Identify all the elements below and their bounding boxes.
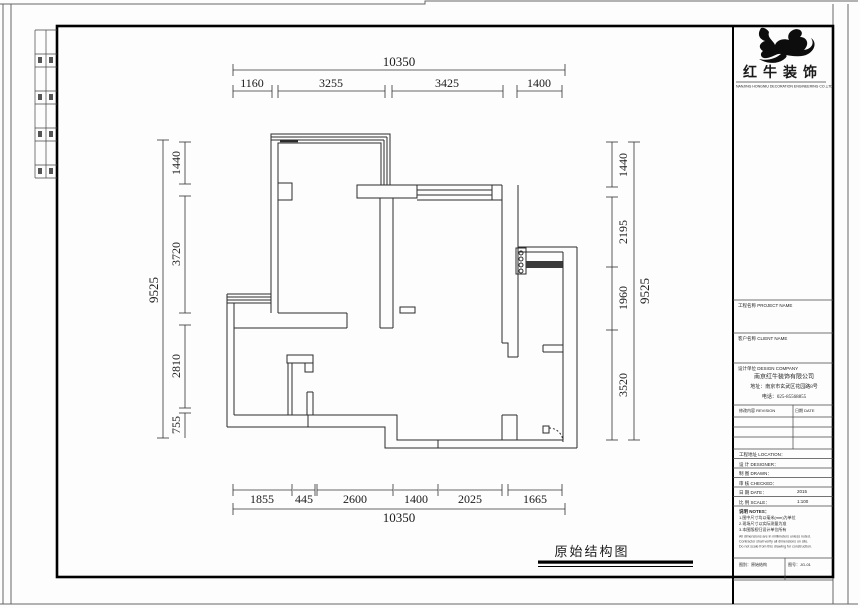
footer-drawing-type: 图别：原始结构 — [739, 562, 767, 568]
dim-left-seg-0: 1440 — [169, 151, 183, 175]
strip-marks — [38, 57, 53, 174]
dimension-top — [233, 64, 565, 98]
dim-bottom-seg-5: 1665 — [523, 492, 547, 506]
dim-bottom-overall: 10350 — [383, 510, 416, 525]
dim-right-seg-1: 2195 — [616, 220, 630, 244]
revision-col-header: 修改内容 REVISION — [739, 408, 775, 414]
dim-right-overall: 9525 — [637, 278, 652, 304]
dim-bottom-seg-2: 2600 — [343, 492, 367, 506]
field-checked: 审 核 CHECKED： — [739, 480, 777, 487]
field-location: 工程地址 LOCATION： — [739, 451, 785, 458]
field-date-value: 2015 — [797, 489, 807, 494]
dim-bottom-seg-3: 1400 — [404, 492, 428, 506]
dim-bottom-seg-1: 445 — [295, 492, 313, 506]
floor-plan-walls — [227, 134, 577, 448]
note-line-1: 1.图中尺寸均以毫米(mm)为单位 — [739, 515, 796, 521]
floorplan-canvas: 10350 1160 3255 3425 1400 1855 445 2600 … — [0, 0, 860, 608]
note-small-3: Do not scale from this drawing for const… — [739, 545, 812, 549]
dim-left-seg-3: 755 — [169, 416, 183, 434]
drawing-sheet: 10350 1160 3255 3425 1400 1855 445 2600 … — [0, 0, 860, 608]
section-label-project: 工程名称 PROJECT NAME — [738, 302, 792, 309]
dim-left-seg-2: 2810 — [169, 354, 183, 378]
dim-top-seg-1: 3255 — [319, 76, 343, 90]
dim-right-seg-2: 1960 — [616, 286, 630, 310]
section-label-client: 客户名称 CLIENT NAME — [738, 335, 787, 342]
section-label-design-co: 设计单位 DESIGN COMPANY — [738, 365, 798, 372]
dim-left-seg-1: 3720 — [169, 242, 183, 266]
brand-subtitle: NANJING HONGNIU DECORATION ENGINEERING C… — [736, 85, 830, 89]
dimension-left — [157, 140, 191, 438]
brand-name: 红牛装饰 — [736, 62, 830, 82]
bull-logo-icon — [759, 28, 815, 63]
dim-bottom-seg-0: 1855 — [250, 492, 274, 506]
notes-header: 说明 NOTES： — [739, 508, 769, 515]
note-line-2: 2.现场尺寸以实际测量为准 — [739, 521, 786, 527]
field-scale: 比 例 SCALE： — [739, 499, 770, 506]
revision-date-header: 日期 DATE — [795, 408, 814, 414]
company-address: 地址：南京市玄武区花园路8号 — [736, 382, 832, 390]
field-date: 日 期 DATE： — [739, 489, 767, 496]
caption-underline — [538, 561, 693, 568]
dim-top-seg-2: 3425 — [435, 76, 459, 90]
field-drawn: 制 图 DRAWN： — [739, 470, 772, 477]
dim-top-seg-0: 1160 — [240, 76, 264, 90]
field-designer: 设 计 DESIGNER： — [739, 461, 779, 468]
note-line-3: 3.本图版权归设计单位所有 — [739, 527, 786, 533]
company-name: 南京红牛装饰有限公司 — [736, 372, 832, 381]
dim-right-seg-3: 3520 — [616, 373, 630, 397]
note-small-1: All dimensions are in millimeters unless… — [739, 535, 811, 539]
company-phone: 电话：025-85568855 — [736, 392, 832, 400]
dim-top-seg-3: 1400 — [527, 76, 551, 90]
frame-borders — [0, 1, 858, 604]
footer-drawing-no: 图号：JG-01 — [788, 562, 811, 568]
margin-cell-strip — [35, 30, 57, 178]
dim-right-seg-0: 1440 — [616, 153, 630, 177]
note-small-2: Contractor shall verify all dimensions o… — [739, 540, 808, 544]
dim-top-overall: 10350 — [383, 54, 416, 69]
dim-bottom-seg-4: 2025 — [458, 492, 482, 506]
drawing-caption: 原始结构图 — [554, 544, 629, 559]
field-scale-value: 1:100 — [797, 499, 808, 504]
dim-left-overall: 9525 — [146, 277, 161, 303]
